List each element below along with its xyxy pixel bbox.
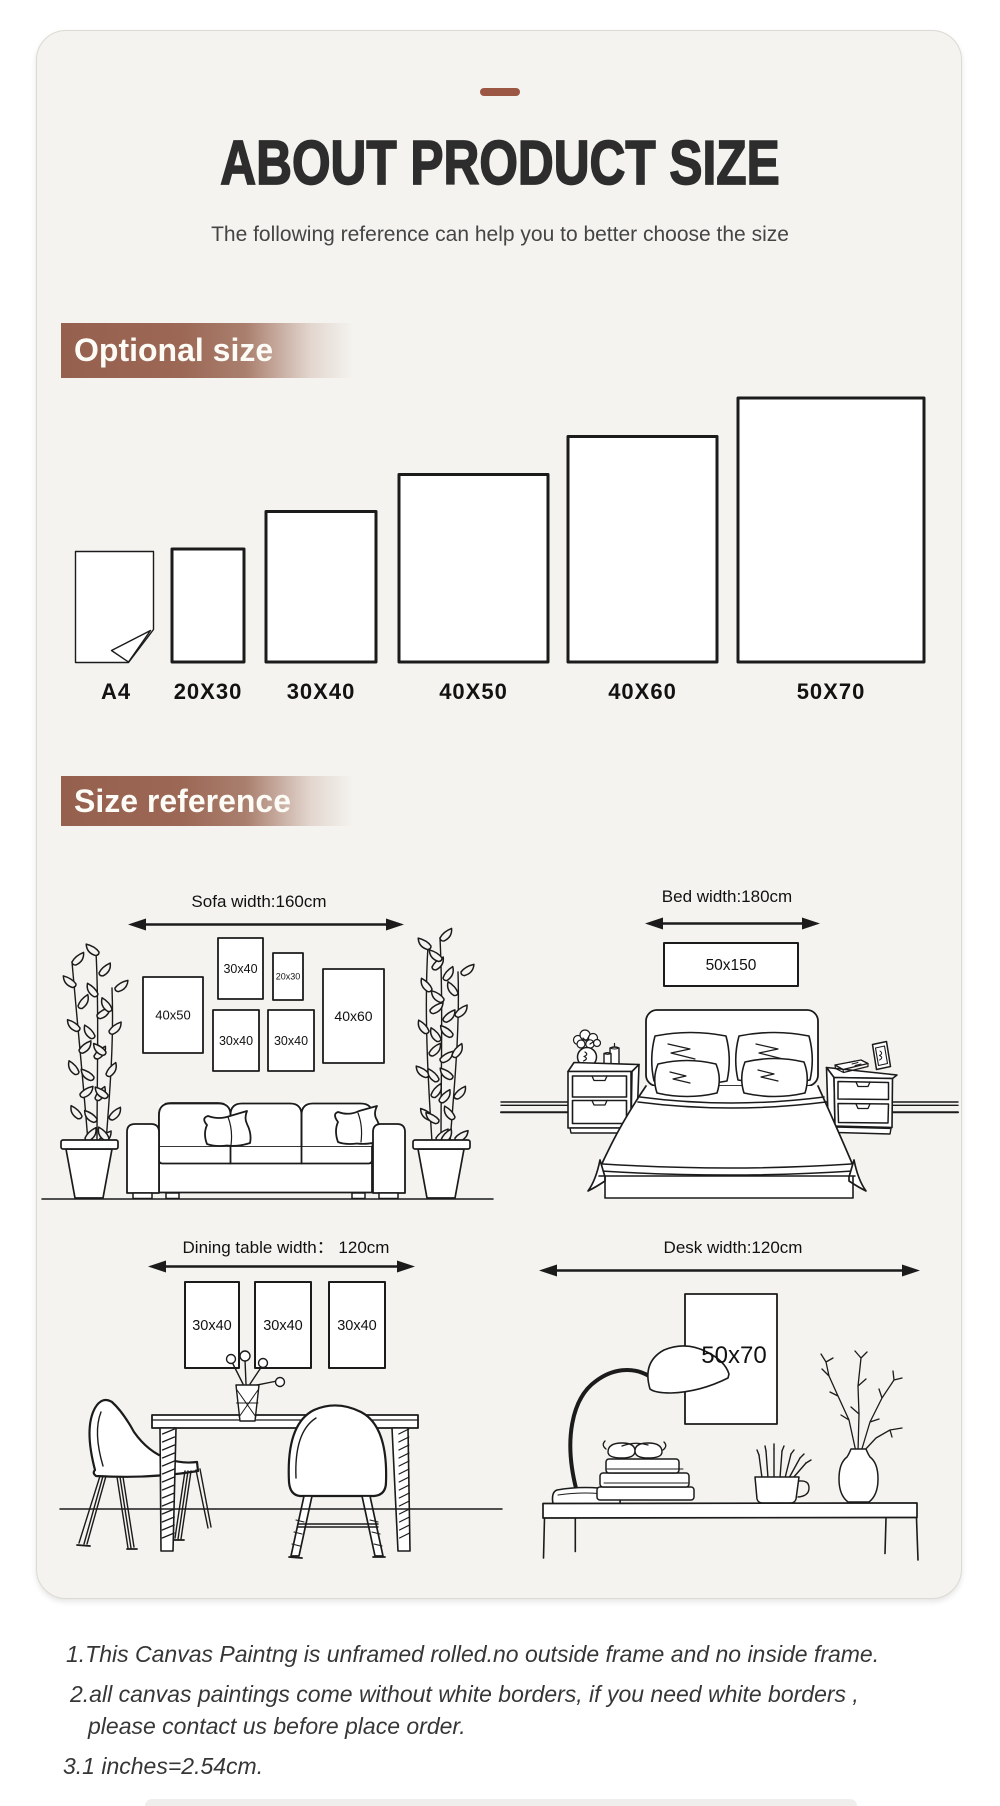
svg-text:40x50: 40x50: [155, 1008, 190, 1023]
svg-text:50x70: 50x70: [701, 1342, 766, 1369]
svg-text:Dining table width： 120cm: Dining table width： 120cm: [183, 1238, 390, 1257]
svg-text:30x40: 30x40: [337, 1318, 377, 1334]
svg-text:40x60: 40x60: [334, 1008, 372, 1024]
svg-text:20x30: 20x30: [276, 972, 301, 982]
svg-text:40X50: 40X50: [439, 679, 508, 704]
svg-text:40X60: 40X60: [608, 679, 677, 704]
svg-text:30x40: 30x40: [192, 1318, 232, 1334]
svg-text:50X70: 50X70: [797, 679, 866, 704]
svg-text:20X30: 20X30: [174, 679, 243, 704]
svg-text:50x150: 50x150: [706, 957, 757, 974]
svg-text:A4: A4: [101, 679, 131, 704]
svg-text:Bed width:180cm: Bed width:180cm: [662, 887, 792, 906]
svg-text:Sofa width:160cm: Sofa width:160cm: [191, 892, 326, 911]
svg-text:30x40: 30x40: [223, 962, 257, 976]
svg-text:Desk width:120cm: Desk width:120cm: [664, 1238, 803, 1257]
svg-text:30x40: 30x40: [263, 1318, 303, 1334]
svg-text:30x40: 30x40: [219, 1034, 253, 1048]
svg-text:30x40: 30x40: [274, 1034, 308, 1048]
svg-text:30X40: 30X40: [287, 679, 356, 704]
